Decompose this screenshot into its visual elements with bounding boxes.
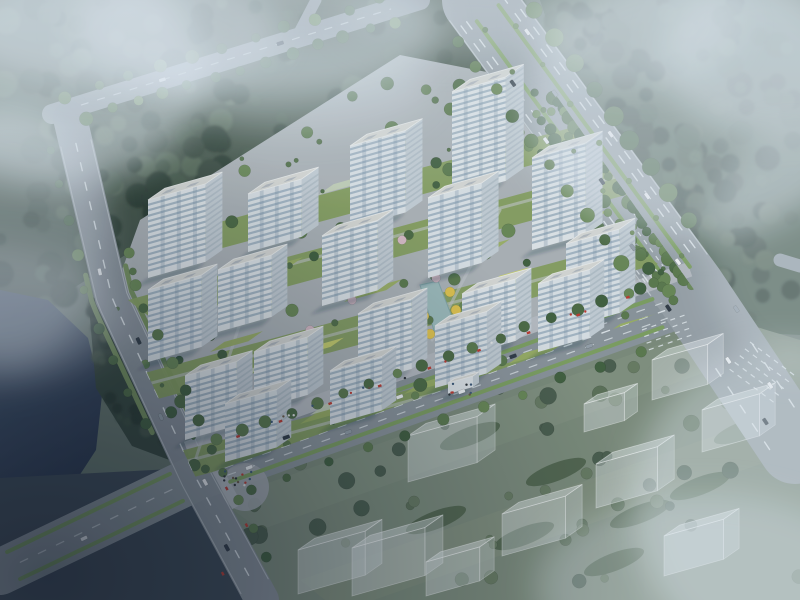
aerial-rendering — [0, 0, 800, 600]
cool-tint — [0, 0, 800, 600]
aerial-rendering-stage — [0, 0, 800, 600]
layer-atmosphere — [0, 0, 800, 600]
